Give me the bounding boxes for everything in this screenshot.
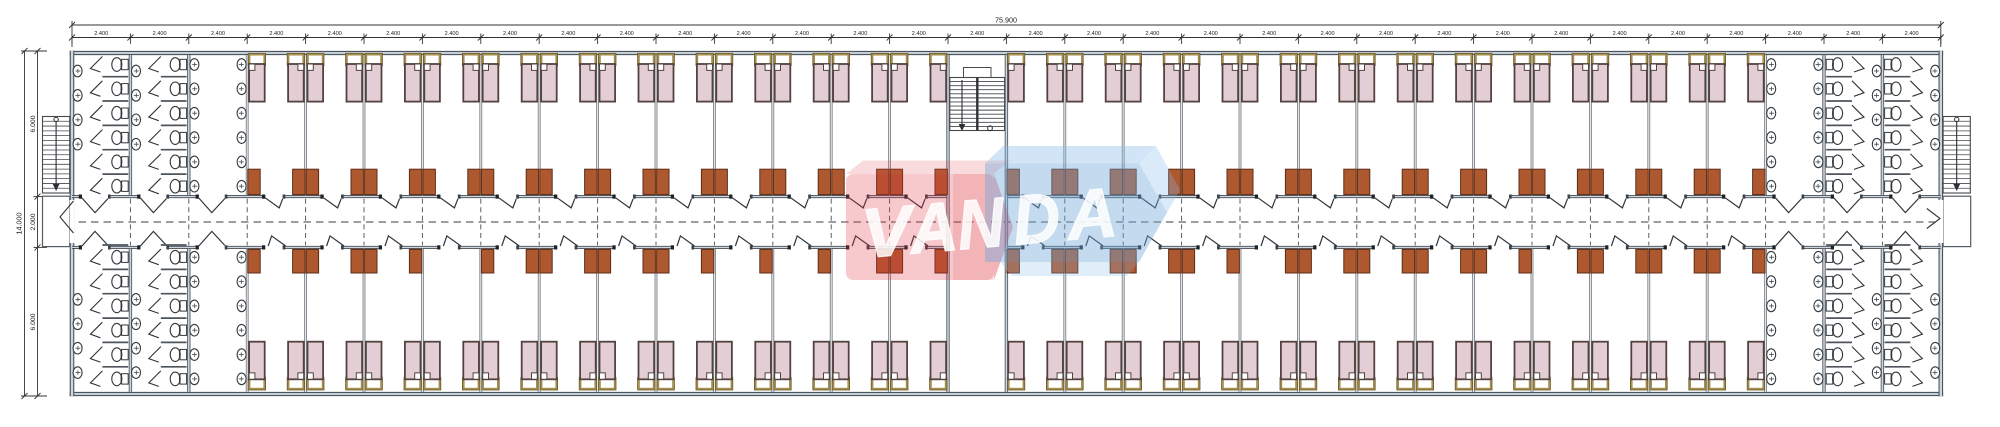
svg-text:2.400: 2.400 [1029, 31, 1043, 37]
svg-text:D: D [1010, 178, 1064, 260]
svg-text:2.400: 2.400 [1496, 31, 1510, 37]
svg-text:2.400: 2.400 [970, 31, 984, 37]
svg-text:2.400: 2.400 [1905, 31, 1919, 37]
svg-text:2.400: 2.400 [737, 31, 751, 37]
svg-text:A: A [1062, 173, 1121, 255]
svg-text:2.400: 2.400 [1145, 31, 1159, 37]
svg-text:2.400: 2.400 [1729, 31, 1743, 37]
svg-text:2.400: 2.400 [1262, 31, 1276, 37]
svg-text:2.400: 2.400 [386, 31, 400, 37]
svg-text:2.400: 2.400 [328, 31, 342, 37]
svg-text:2.400: 2.400 [795, 31, 809, 37]
svg-text:2.400: 2.400 [1087, 31, 1101, 37]
svg-text:2.400: 2.400 [1379, 31, 1393, 37]
svg-text:14.000: 14.000 [15, 213, 24, 235]
svg-text:75.900: 75.900 [995, 16, 1017, 25]
svg-text:2.400: 2.400 [678, 31, 692, 37]
svg-text:2.400: 2.400 [1846, 31, 1860, 37]
svg-text:2.400: 2.400 [153, 31, 167, 37]
svg-text:2.400: 2.400 [269, 31, 283, 37]
svg-text:2.400: 2.400 [1788, 31, 1802, 37]
svg-text:2.000: 2.000 [30, 213, 37, 230]
svg-text:2.400: 2.400 [620, 31, 634, 37]
svg-text:6.000: 6.000 [30, 115, 37, 132]
svg-text:6.000: 6.000 [30, 313, 37, 330]
svg-text:2.400: 2.400 [561, 31, 575, 37]
svg-text:2.400: 2.400 [211, 31, 225, 37]
svg-text:A: A [904, 187, 961, 269]
svg-text:2.400: 2.400 [912, 31, 926, 37]
svg-text:2.400: 2.400 [1554, 31, 1568, 37]
svg-text:2.400: 2.400 [853, 31, 867, 37]
svg-text:2.400: 2.400 [503, 31, 517, 37]
svg-text:N: N [954, 183, 1009, 265]
svg-text:2.400: 2.400 [1204, 31, 1218, 37]
svg-text:2.400: 2.400 [1321, 31, 1335, 37]
svg-text:2.400: 2.400 [445, 31, 459, 37]
svg-text:2.400: 2.400 [1613, 31, 1627, 37]
svg-text:2.400: 2.400 [94, 31, 108, 37]
svg-text:2.400: 2.400 [1437, 31, 1451, 37]
svg-text:2.400: 2.400 [1671, 31, 1685, 37]
